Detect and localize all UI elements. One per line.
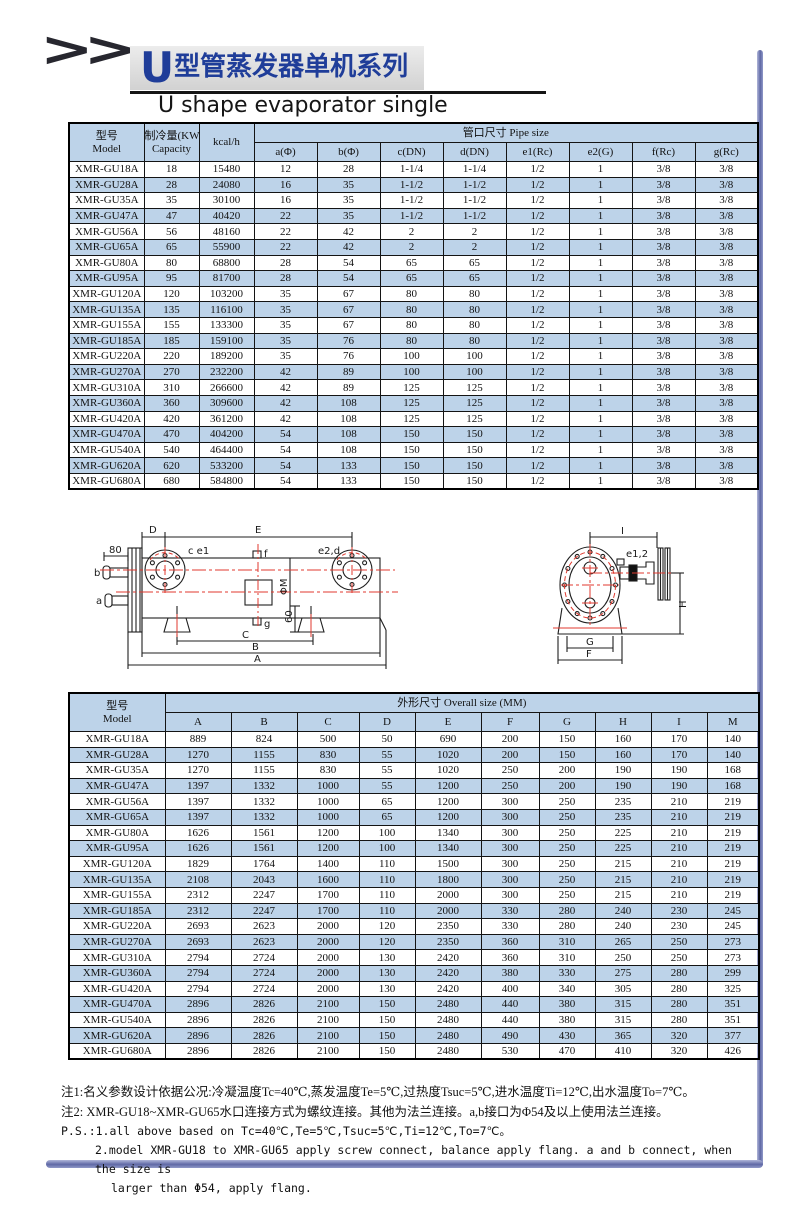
model-cell: XMR-GU470A [69,997,165,1013]
value-cell: 108 [317,427,380,443]
dim-C-label: C [242,630,249,641]
table-row: XMR-GU65A1397133210006512003002502352102… [69,809,759,825]
value-cell: 310 [539,934,595,950]
value-cell: 1397 [165,794,231,810]
value-cell: 210 [651,825,707,841]
value-cell: 125 [443,380,506,396]
value-cell: 1 [569,255,632,271]
table-row: XMR-GU28A1270115583055102020015016017014… [69,747,759,763]
table-row: XMR-GU155A231222471700110200030025021521… [69,887,759,903]
table-row: XMR-GU47A474042022351-1/21-1/21/213/83/8 [69,208,758,224]
value-cell: 310 [144,380,199,396]
value-cell: 300 [481,825,539,841]
value-cell: 1332 [231,809,297,825]
model-cell: XMR-GU28A [69,177,144,193]
value-cell: 110 [359,872,415,888]
value-cell: 110 [359,856,415,872]
col-header-E: E [415,713,481,732]
value-cell: 1 [569,473,632,489]
model-cell: XMR-GU680A [69,473,144,489]
value-cell: 1 [569,380,632,396]
value-cell: 120 [144,286,199,302]
value-cell: 35 [254,333,317,349]
value-cell: 54 [254,442,317,458]
value-cell: 190 [651,778,707,794]
table-row: XMR-GU470A289628262100150248044038031528… [69,997,759,1013]
value-cell: 330 [481,903,539,919]
port-e12-label: e1,2 [626,549,648,560]
value-cell: 1200 [297,841,359,857]
value-cell: 67 [317,286,380,302]
col-header-e1: e1(Rc) [506,143,569,162]
value-cell: 2 [443,224,506,240]
value-cell: 1397 [165,778,231,794]
value-cell: 54 [254,427,317,443]
value-cell: 2312 [165,903,231,919]
value-cell: 3/8 [695,208,758,224]
col-header-model: 型号Model [69,123,144,162]
value-cell: 440 [481,1012,539,1028]
col-header-kcal: kcal/h [199,123,254,162]
table-row: XMR-GU35A1270115583055102025020019019016… [69,763,759,779]
value-cell: 470 [539,1043,595,1059]
value-cell: 15480 [199,162,254,178]
value-cell: 210 [651,872,707,888]
model-cell: XMR-GU135A [69,302,144,318]
value-cell: 65 [443,271,506,287]
datasheet-page: >> U型管蒸发器单机系列 U shape evaporator single … [0,0,800,1212]
model-cell: XMR-GU220A [69,349,144,365]
dim-A-label: A [254,654,261,665]
value-cell: 230 [651,903,707,919]
value-cell: 89 [317,380,380,396]
value-cell: 2 [443,239,506,255]
model-cell: XMR-GU80A [69,825,165,841]
value-cell: 2420 [415,981,481,997]
value-cell: 210 [651,887,707,903]
value-cell: 68800 [199,255,254,271]
value-cell: 824 [231,732,297,748]
value-cell: 125 [380,411,443,427]
col-header-c: c(DN) [380,143,443,162]
value-cell: 351 [707,997,759,1013]
dim-G-label: G [586,637,594,648]
footnotes: 注1:名义参数设计依据公况:冷凝温度Tc=40℃,蒸发温度Te=5℃,过热度Ts… [61,1082,747,1198]
value-cell: 1500 [415,856,481,872]
value-cell: 315 [595,997,651,1013]
value-cell: 55900 [199,239,254,255]
value-cell: 320 [651,1043,707,1059]
table-row: XMR-GU18A181548012281-1/41-1/41/213/83/8 [69,162,758,178]
value-cell: 80 [443,317,506,333]
table-row: XMR-GU120A182917641400110150030025021521… [69,856,759,872]
table-row: XMR-GU360A360309600421081251251/213/83/8 [69,395,758,411]
value-cell: 250 [595,950,651,966]
value-cell: 3/8 [632,395,695,411]
value-cell: 360 [481,934,539,950]
value-cell: 54 [317,271,380,287]
value-cell: 2896 [165,1043,231,1059]
value-cell: 1020 [415,763,481,779]
value-cell: 80 [380,302,443,318]
value-cell: 168 [707,778,759,794]
value-cell: 1200 [415,794,481,810]
value-cell: 3/8 [695,317,758,333]
value-cell: 65 [359,809,415,825]
value-cell: 1 [569,364,632,380]
value-cell: 100 [359,841,415,857]
value-cell: 620 [144,458,199,474]
value-cell: 420 [144,411,199,427]
value-cell: 16 [254,177,317,193]
value-cell: 42 [254,364,317,380]
model-cell: XMR-GU95A [69,271,144,287]
model-cell: XMR-GU56A [69,224,144,240]
value-cell: 225 [595,825,651,841]
value-cell: 1-1/2 [443,208,506,224]
value-cell: 120 [359,934,415,950]
value-cell: 35 [317,193,380,209]
value-cell: 1400 [297,856,359,872]
value-cell: 2724 [231,950,297,966]
value-cell: 42 [254,395,317,411]
value-cell: 1/2 [506,302,569,318]
table-row: XMR-GU56A1397133210006512003002502352102… [69,794,759,810]
col-header-M: M [707,713,759,732]
value-cell: 190 [595,763,651,779]
value-cell: 18 [144,162,199,178]
value-cell: 1 [569,427,632,443]
value-cell: 280 [651,981,707,997]
value-cell: 3/8 [632,193,695,209]
value-cell: 250 [651,934,707,950]
table-row: XMR-GU185A185159100357680801/213/83/8 [69,333,758,349]
value-cell: 1340 [415,841,481,857]
value-cell: 16 [254,193,317,209]
value-cell: 3/8 [695,411,758,427]
value-cell: 80 [380,333,443,349]
value-cell: 12 [254,162,317,178]
model-cell: XMR-GU56A [69,794,165,810]
value-cell: 250 [481,778,539,794]
value-cell: 2794 [165,965,231,981]
value-cell: 219 [707,841,759,857]
dim-E-label: E [255,525,261,536]
value-cell: 280 [651,997,707,1013]
value-cell: 125 [443,395,506,411]
value-cell: 889 [165,732,231,748]
value-cell: 150 [359,1028,415,1044]
value-cell: 219 [707,825,759,841]
value-cell: 1-1/2 [443,193,506,209]
value-cell: 35 [254,302,317,318]
value-cell: 219 [707,809,759,825]
value-cell: 3/8 [695,427,758,443]
value-cell: 42 [317,224,380,240]
value-cell: 2420 [415,950,481,966]
col-header-B: B [231,713,297,732]
value-cell: 2724 [231,965,297,981]
group-header-pipe-size: 管口尺寸 Pipe size [254,123,758,143]
value-cell: 22 [254,239,317,255]
note-ps-1: P.S.:1.all above based on Tc=40℃,Te=5℃,T… [61,1122,747,1141]
value-cell: 100 [443,349,506,365]
table-row: XMR-GU680A289628262100150248053047041032… [69,1043,759,1059]
port-f-label: f [264,549,268,560]
value-cell: 65 [380,271,443,287]
value-cell: 130 [359,965,415,981]
dim-H-label: H [678,600,689,608]
value-cell: 2108 [165,872,231,888]
value-cell: 426 [707,1043,759,1059]
value-cell: 1-1/2 [443,177,506,193]
table-row: XMR-GU220A22018920035761001001/213/83/8 [69,349,758,365]
value-cell: 430 [539,1028,595,1044]
model-cell: XMR-GU47A [69,208,144,224]
value-cell: 1-1/2 [380,208,443,224]
value-cell: 2480 [415,1043,481,1059]
value-cell: 81700 [199,271,254,287]
value-cell: 1270 [165,747,231,763]
table-row: XMR-GU680A680584800541331501501/213/83/8 [69,473,758,489]
value-cell: 100 [359,825,415,841]
dim-60-label: 60 [284,610,295,623]
value-cell: 1-1/2 [380,193,443,209]
value-cell: 250 [539,841,595,857]
model-cell: XMR-GU220A [69,919,165,935]
value-cell: 116100 [199,302,254,318]
model-cell: XMR-GU620A [69,1028,165,1044]
value-cell: 490 [481,1028,539,1044]
table-row: XMR-GU270A27023220042891001001/213/83/8 [69,364,758,380]
table-row: XMR-GU310A31026660042891251251/213/83/8 [69,380,758,396]
value-cell: 80 [443,333,506,349]
table-row: XMR-GU360A279427242000130242038033027528… [69,965,759,981]
value-cell: 65 [443,255,506,271]
value-cell: 310 [539,950,595,966]
value-cell: 1 [569,411,632,427]
value-cell: 325 [707,981,759,997]
col-header-F: F [481,713,539,732]
value-cell: 1/2 [506,380,569,396]
side-view [103,532,386,669]
value-cell: 365 [595,1028,651,1044]
value-cell: 2000 [297,981,359,997]
value-cell: 80 [144,255,199,271]
value-cell: 1561 [231,825,297,841]
value-cell: 150 [380,458,443,474]
value-cell: 67 [317,302,380,318]
value-cell: 2247 [231,903,297,919]
value-cell: 280 [539,903,595,919]
value-cell: 210 [651,841,707,857]
model-cell: XMR-GU155A [69,317,144,333]
value-cell: 1270 [165,763,231,779]
value-cell: 340 [539,981,595,997]
value-cell: 28 [144,177,199,193]
col-header-model: 型号Model [69,693,165,732]
value-cell: 830 [297,763,359,779]
value-cell: 351 [707,1012,759,1028]
col-header-D: D [359,713,415,732]
value-cell: 200 [481,747,539,763]
port-b-label: b [94,568,100,579]
value-cell: 190 [651,763,707,779]
value-cell: 150 [380,442,443,458]
value-cell: 1340 [415,825,481,841]
value-cell: 225 [595,841,651,857]
value-cell: 1 [569,193,632,209]
value-cell: 1626 [165,841,231,857]
value-cell: 3/8 [632,317,695,333]
value-cell: 220 [144,349,199,365]
value-cell: 3/8 [695,271,758,287]
value-cell: 250 [539,825,595,841]
value-cell: 150 [359,1043,415,1059]
value-cell: 3/8 [695,286,758,302]
value-cell: 1200 [297,825,359,841]
table-row: XMR-GU620A620533200541331501501/213/83/8 [69,458,758,474]
value-cell: 1 [569,317,632,333]
note-ps-2: 2.model XMR-GU18 to XMR-GU65 apply screw… [61,1141,747,1179]
value-cell: 76 [317,333,380,349]
value-cell: 100 [443,364,506,380]
value-cell: 235 [595,809,651,825]
value-cell: 170 [651,732,707,748]
model-cell: XMR-GU540A [69,442,144,458]
value-cell: 1/2 [506,317,569,333]
model-cell: XMR-GU185A [69,333,144,349]
value-cell: 150 [539,747,595,763]
end-view [558,532,684,664]
value-cell: 250 [539,794,595,810]
value-cell: 266600 [199,380,254,396]
value-cell: 28 [254,271,317,287]
value-cell: 42 [254,380,317,396]
value-cell: 30100 [199,193,254,209]
port-e2d-label: e2,d [318,546,340,557]
value-cell: 170 [651,747,707,763]
value-cell: 530 [481,1043,539,1059]
value-cell: 150 [359,997,415,1013]
value-cell: 2100 [297,997,359,1013]
port-a-label: a [96,596,102,607]
value-cell: 2100 [297,1012,359,1028]
value-cell: 1/2 [506,349,569,365]
value-cell: 1/2 [506,442,569,458]
value-cell: 55 [359,763,415,779]
value-cell: 2896 [165,1012,231,1028]
value-cell: 2896 [165,997,231,1013]
value-cell: 1 [569,349,632,365]
value-cell: 3/8 [632,239,695,255]
value-cell: 1200 [415,809,481,825]
value-cell: 245 [707,919,759,935]
value-cell: 2100 [297,1043,359,1059]
value-cell: 3/8 [632,349,695,365]
dim-B-label: B [252,642,259,653]
value-cell: 3/8 [695,162,758,178]
port-ce1-label: c e1 [188,546,209,557]
value-cell: 1155 [231,763,297,779]
value-cell: 1764 [231,856,297,872]
value-cell: 65 [380,255,443,271]
value-cell: 54 [254,473,317,489]
value-cell: 320 [651,1028,707,1044]
value-cell: 1/2 [506,255,569,271]
dim-phiM-label: ΦM [279,579,290,596]
table-row: XMR-GU185A231222471700110200033028024023… [69,903,759,919]
value-cell: 360 [481,950,539,966]
model-cell: XMR-GU185A [69,903,165,919]
value-cell: 159100 [199,333,254,349]
value-cell: 140 [707,747,759,763]
port-g-label: g [264,619,270,630]
page-title: U型管蒸发器单机系列 [130,46,546,94]
value-cell: 1/2 [506,473,569,489]
value-cell: 50 [359,732,415,748]
value-cell: 2350 [415,934,481,950]
technical-drawing: 80 b a D E c e1 f e2,d ΦM g 60 C B A I e… [50,510,760,690]
table-row: XMR-GU135A135116100356780801/213/83/8 [69,302,758,318]
value-cell: 1/2 [506,458,569,474]
value-cell: 404200 [199,427,254,443]
value-cell: 219 [707,887,759,903]
value-cell: 125 [380,380,443,396]
table-row: XMR-GU420A279427242000130242040034030528… [69,981,759,997]
value-cell: 240 [595,919,651,935]
table-row: XMR-GU135A210820431600110180030025021521… [69,872,759,888]
value-cell: 2724 [231,981,297,997]
value-cell: 500 [297,732,359,748]
model-cell: XMR-GU28A [69,747,165,763]
model-cell: XMR-GU310A [69,950,165,966]
model-cell: XMR-GU120A [69,286,144,302]
table-row: XMR-GU540A540464400541081501501/213/83/8 [69,442,758,458]
model-cell: XMR-GU120A [69,856,165,872]
model-cell: XMR-GU470A [69,427,144,443]
table-row: XMR-GU155A155133300356780801/213/83/8 [69,317,758,333]
table-row: XMR-GU56A56481602242221/213/83/8 [69,224,758,240]
table-row: XMR-GU47A1397133210005512002502001901901… [69,778,759,794]
table-row: XMR-GU310A279427242000130242036031025025… [69,950,759,966]
value-cell: 410 [595,1043,651,1059]
col-header-e2: e2(G) [569,143,632,162]
value-cell: 470 [144,427,199,443]
value-cell: 200 [539,778,595,794]
value-cell: 1 [569,177,632,193]
value-cell: 3/8 [632,286,695,302]
value-cell: 80 [443,302,506,318]
value-cell: 215 [595,856,651,872]
page-title-box: U型管蒸发器单机系列 [130,46,424,90]
model-cell: XMR-GU680A [69,1043,165,1059]
value-cell: 1 [569,333,632,349]
value-cell: 2420 [415,965,481,981]
value-cell: 300 [481,841,539,857]
model-cell: XMR-GU95A [69,841,165,857]
value-cell: 1 [569,162,632,178]
value-cell: 40420 [199,208,254,224]
value-cell: 1397 [165,809,231,825]
col-header-C: C [297,713,359,732]
value-cell: 2794 [165,981,231,997]
value-cell: 65 [144,239,199,255]
value-cell: 35 [254,286,317,302]
value-cell: 2896 [165,1028,231,1044]
value-cell: 1 [569,224,632,240]
value-cell: 2693 [165,919,231,935]
